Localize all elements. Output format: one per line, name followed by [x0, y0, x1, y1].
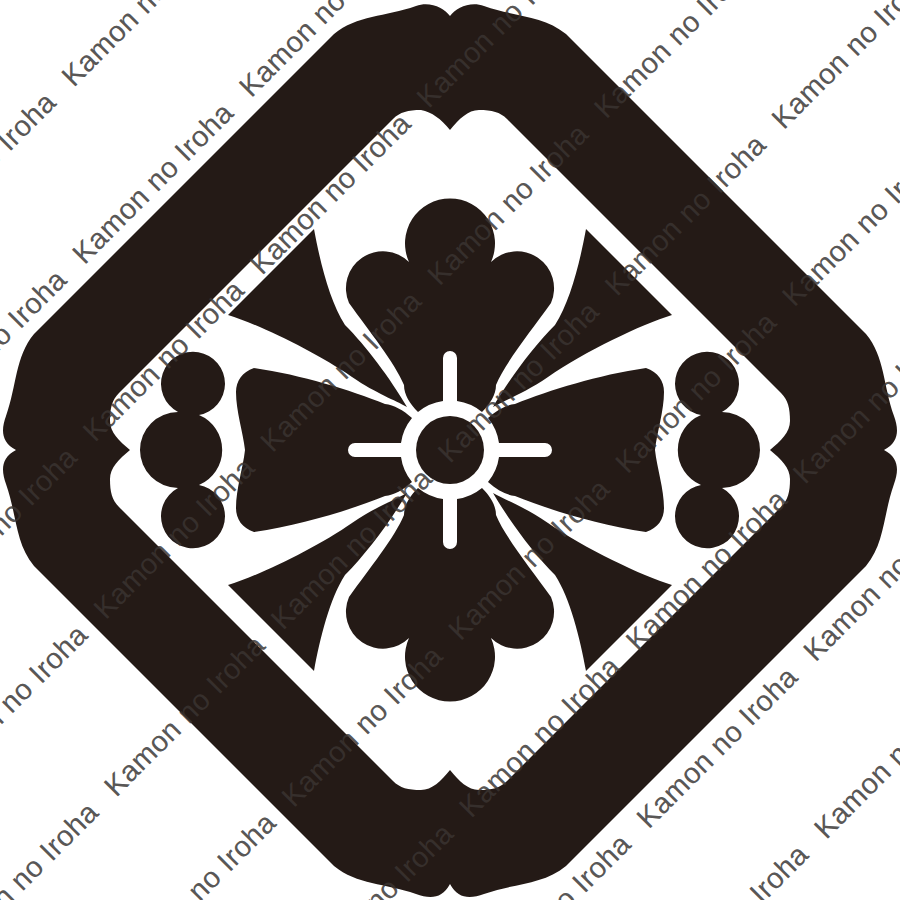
kamon-canvas: Kamon no IrohaKamon no IrohaKamon no Iro…: [0, 0, 900, 900]
watermarked-kamon-image: Kamon no IrohaKamon no IrohaKamon no Iro…: [0, 0, 900, 900]
